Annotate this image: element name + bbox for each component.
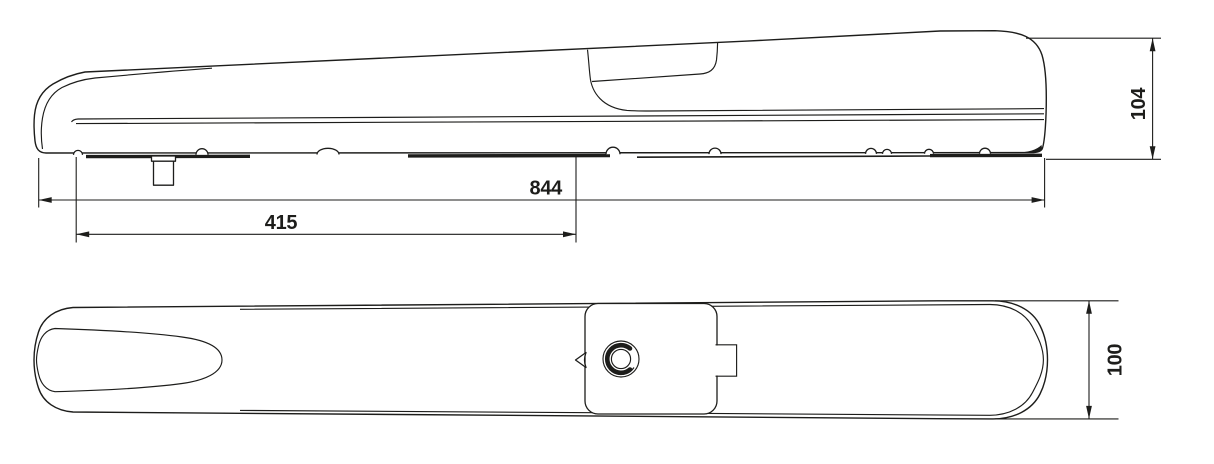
dimension-label-partial-length: 415: [265, 212, 298, 234]
arrowhead-right: [1032, 197, 1045, 203]
side-housing-seam-line-2: [76, 120, 1044, 124]
dimension-label-width: 100: [1105, 344, 1127, 377]
side-release-cover-profile: [588, 50, 1045, 111]
actuator-dimension-drawing: 844 415 104: [0, 0, 1214, 464]
side-housing-seam-step: [72, 119, 79, 122]
arrowhead-up: [1150, 38, 1156, 51]
plan-direction-pointer-icon: [576, 353, 587, 368]
arrowhead-right: [563, 231, 576, 237]
side-mounting-pin: [152, 156, 176, 185]
arrowhead-up: [1086, 301, 1092, 314]
dimension-label-height: 104: [1128, 87, 1150, 121]
plan-view: [34, 301, 1048, 419]
arrowhead-left: [39, 197, 52, 203]
side-release-cover-inner-edge: [592, 43, 718, 82]
side-nose-seam-line: [41, 68, 212, 149]
arrowhead-left: [76, 231, 89, 237]
side-body-outline: [34, 31, 1046, 153]
side-bottom-corner-fillet: [1014, 145, 1042, 153]
plan-cover-tab-fill: [716, 346, 736, 376]
arrowhead-down: [1086, 406, 1092, 419]
side-view: [34, 31, 1046, 186]
dimension-label-total-length: 844: [530, 178, 564, 200]
plan-body-outline: [34, 301, 1048, 419]
side-bottom-bosses: [74, 147, 991, 155]
side-housing-seam-line-1: [78, 114, 1044, 119]
arrowhead-down: [1150, 146, 1156, 159]
technical-drawing-page: 844 415 104: [0, 0, 1214, 464]
plan-front-slot: [37, 329, 223, 392]
side-bottom-groove-line: [637, 156, 930, 157]
plan-release-cover-panel: [585, 304, 717, 415]
plan-view-dimensions: 100: [995, 301, 1127, 419]
